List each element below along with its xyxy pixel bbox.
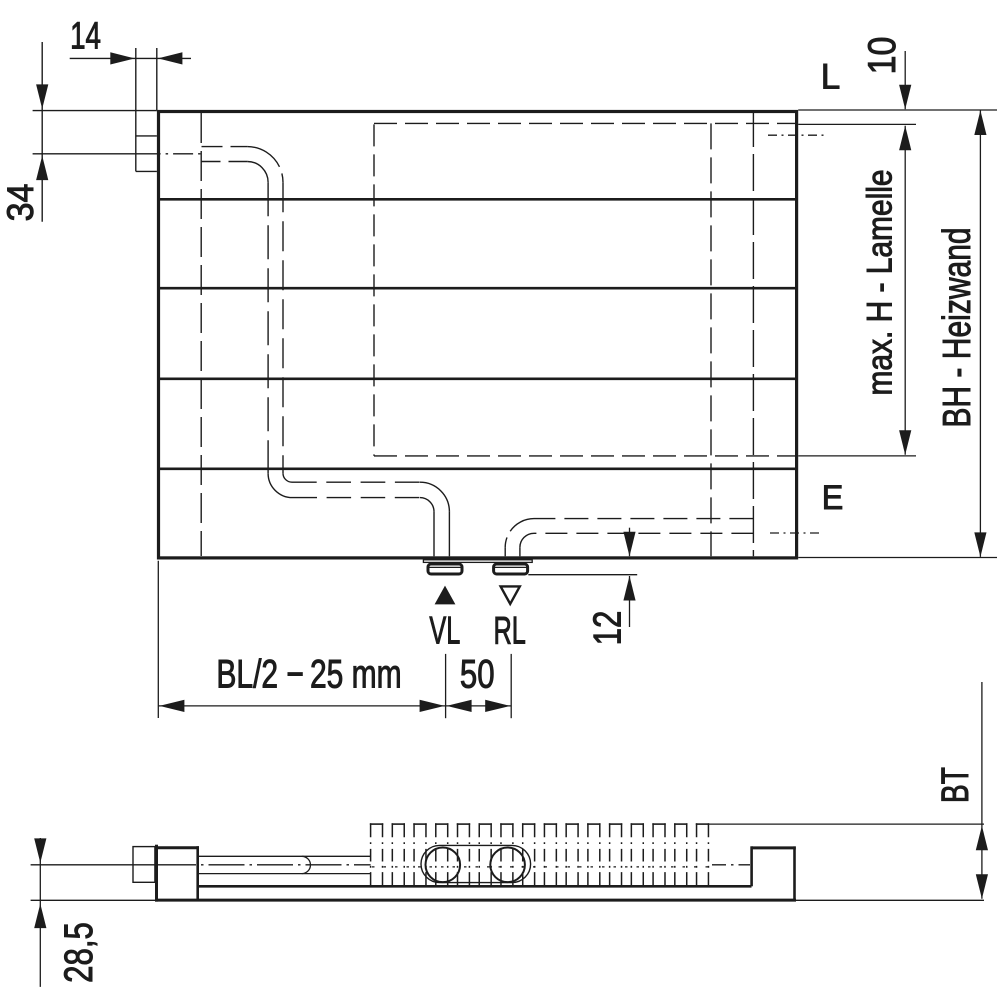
- svg-text:max. H - Lamelle: max. H - Lamelle: [861, 169, 900, 395]
- svg-text:BL/2 − 25 mm: BL/2 − 25 mm: [216, 652, 401, 696]
- svg-text:E: E: [822, 479, 844, 517]
- svg-text:28,5: 28,5: [56, 922, 101, 983]
- svg-text:BH - Heizwand: BH - Heizwand: [935, 227, 979, 427]
- svg-text:BT: BT: [935, 767, 977, 803]
- svg-text:50: 50: [460, 652, 495, 697]
- svg-text:10: 10: [860, 37, 904, 75]
- svg-text:RL: RL: [494, 608, 526, 652]
- svg-text:12: 12: [586, 611, 629, 646]
- svg-text:34: 34: [0, 184, 41, 222]
- svg-text:L: L: [821, 57, 840, 96]
- svg-text:14: 14: [70, 15, 101, 57]
- svg-text:VL: VL: [429, 608, 460, 652]
